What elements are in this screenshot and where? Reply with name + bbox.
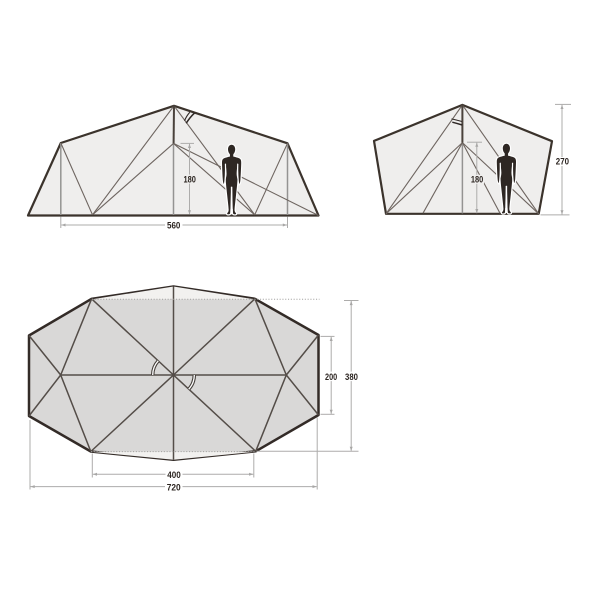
svg-text:270: 270 — [556, 157, 569, 167]
svg-text:200: 200 — [325, 372, 337, 382]
svg-text:180: 180 — [471, 175, 483, 185]
svg-text:380: 380 — [345, 372, 358, 382]
svg-text:720: 720 — [167, 483, 181, 493]
svg-text:180: 180 — [184, 174, 196, 184]
svg-text:560: 560 — [167, 221, 180, 231]
svg-text:400: 400 — [167, 470, 181, 480]
